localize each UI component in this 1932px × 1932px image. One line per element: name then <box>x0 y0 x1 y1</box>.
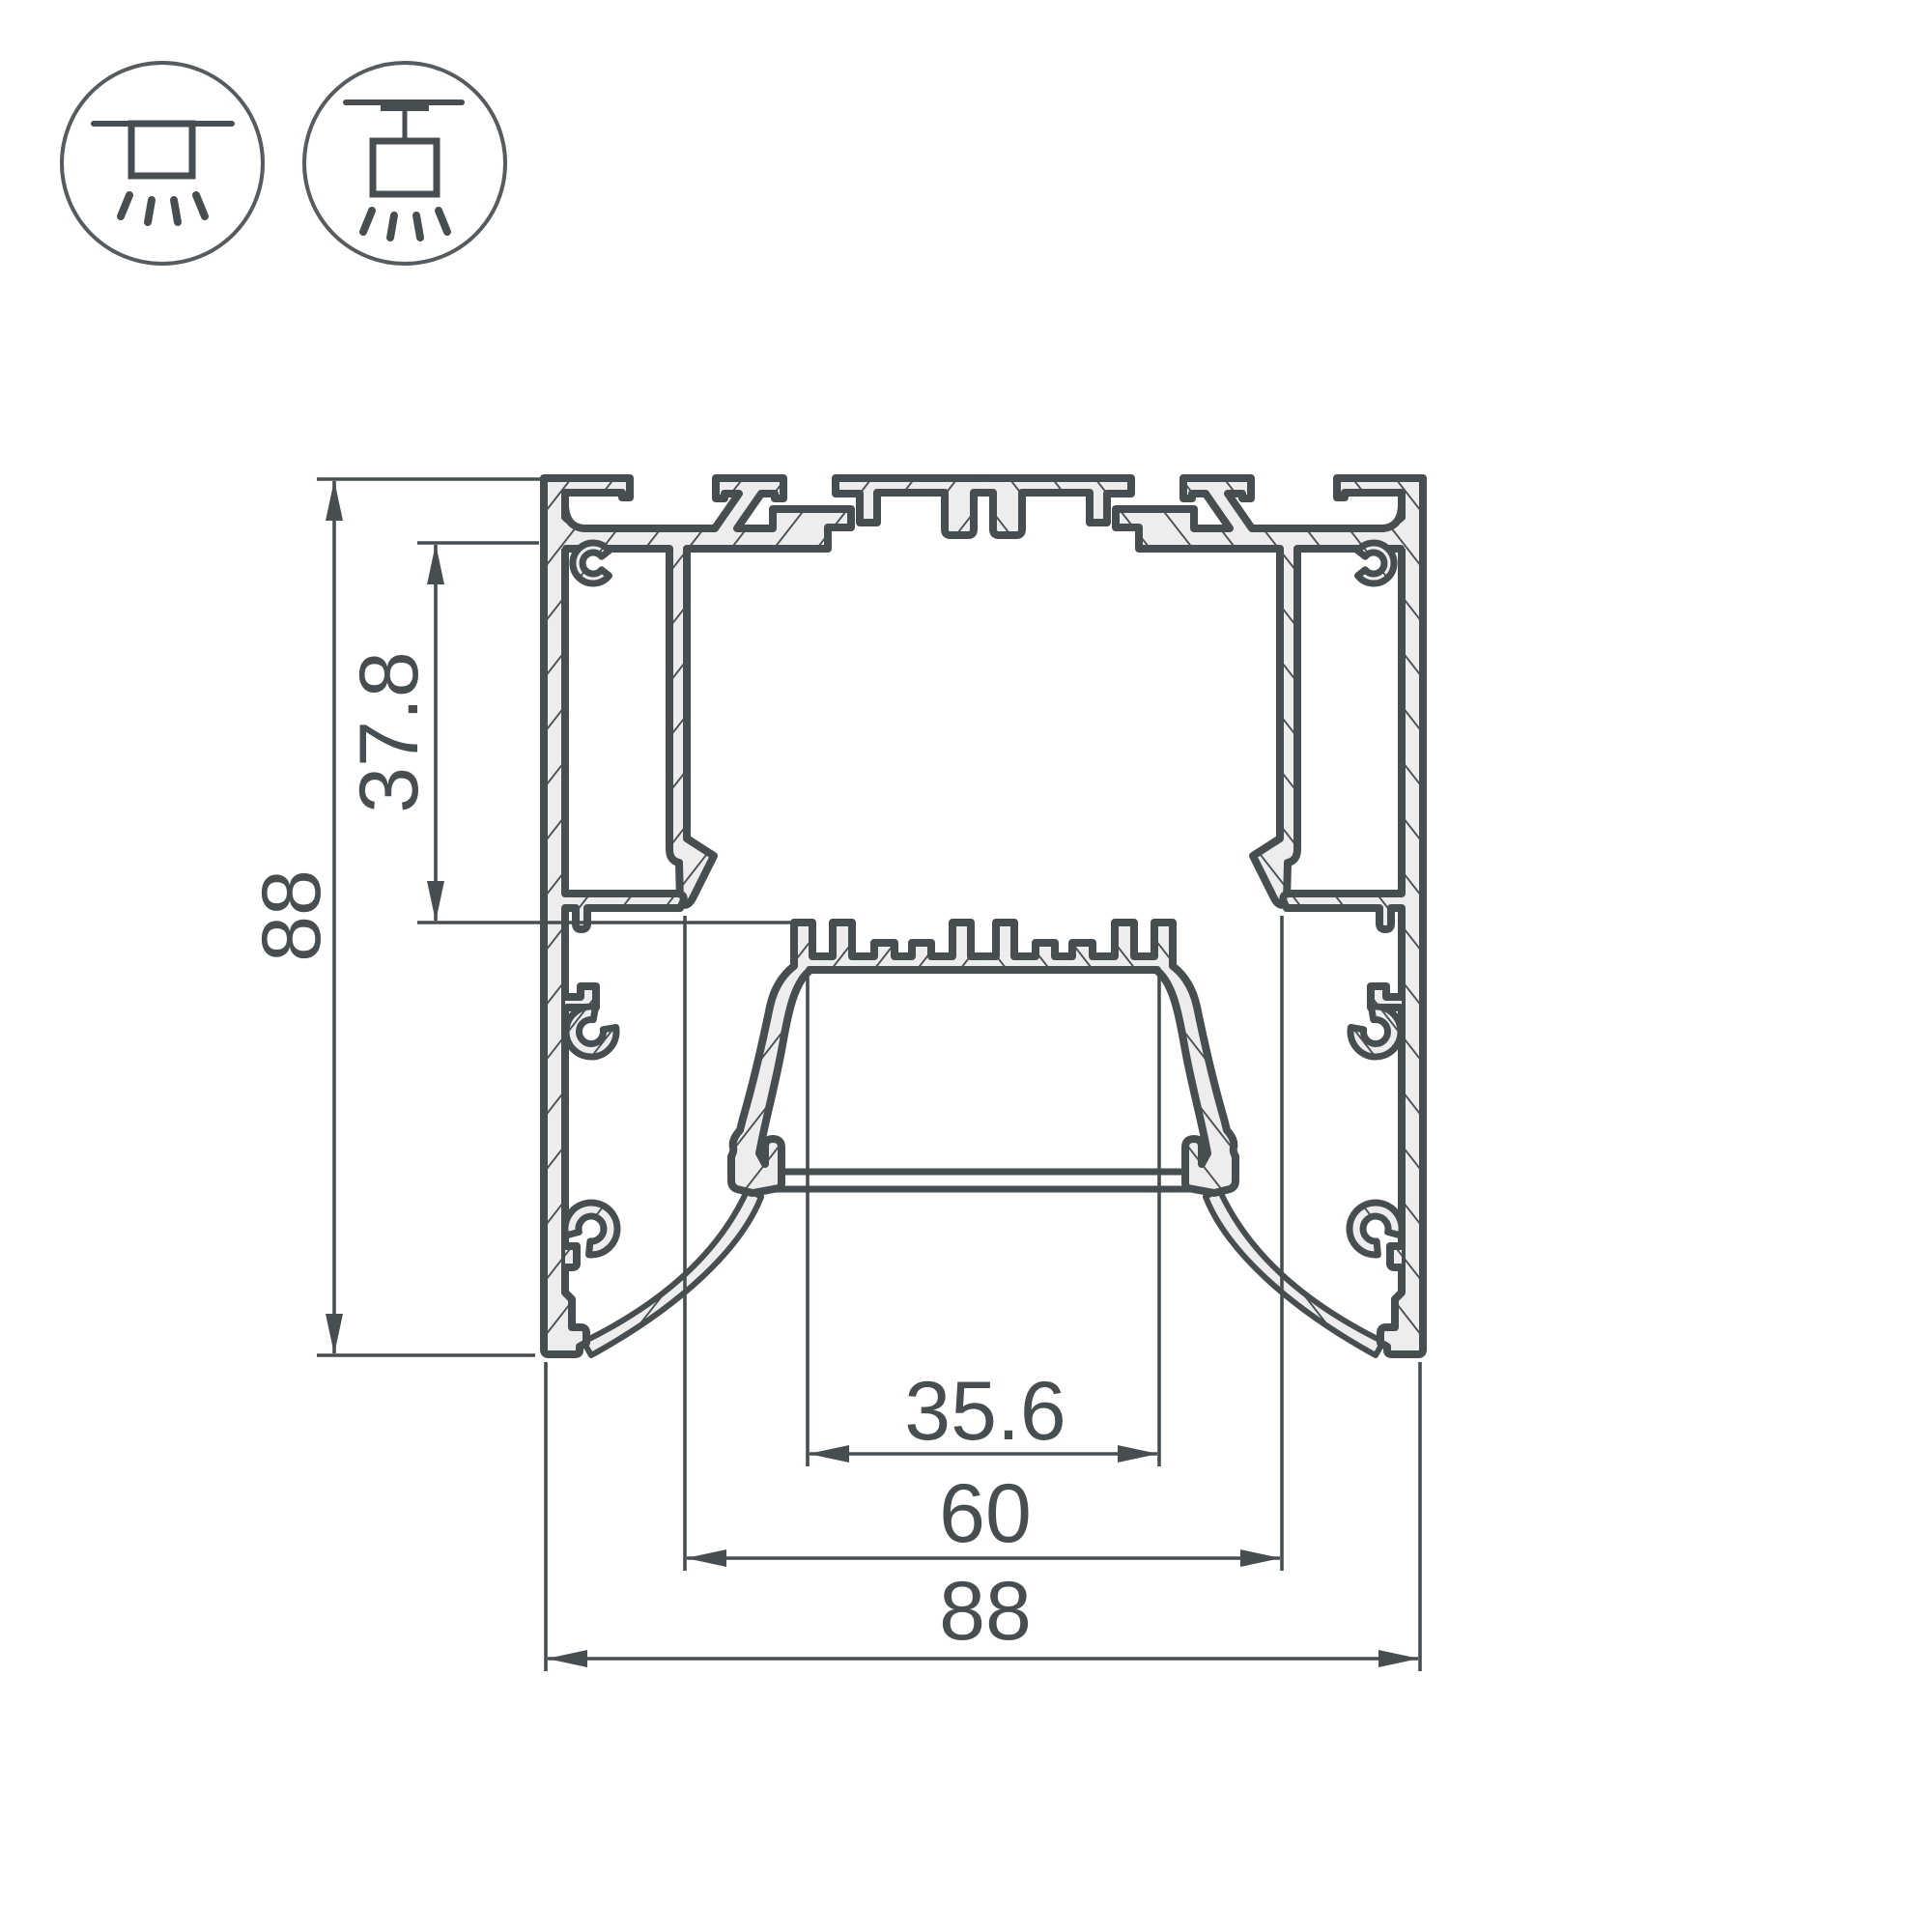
svg-text:88: 88 <box>245 869 338 962</box>
svg-text:88: 88 <box>939 1565 1032 1658</box>
svg-text:35.6: 35.6 <box>904 1365 1065 1458</box>
svg-text:37.8: 37.8 <box>343 651 436 812</box>
svg-text:60: 60 <box>939 1467 1032 1560</box>
